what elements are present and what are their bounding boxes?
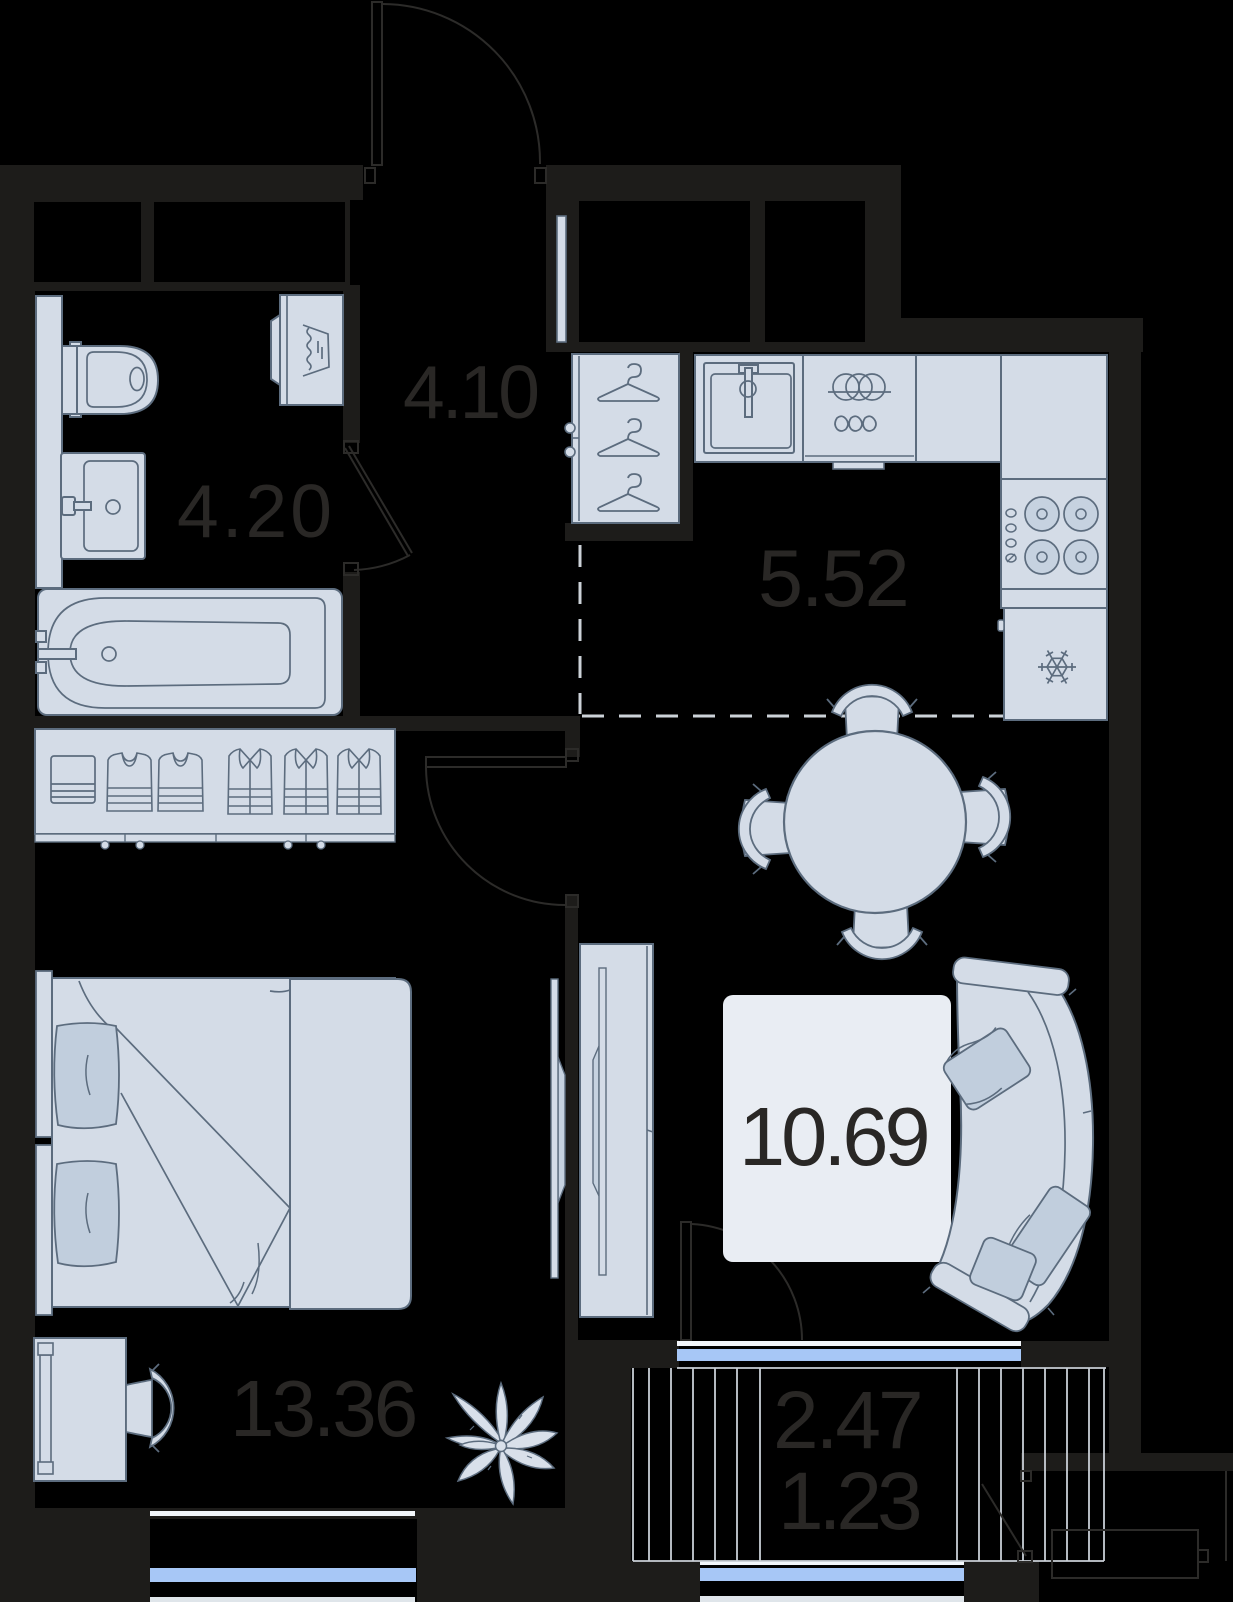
svg-text:13.36: 13.36 [230, 1364, 415, 1453]
svg-text:2.47: 2.47 [773, 1375, 921, 1466]
svg-text:5.52: 5.52 [758, 534, 908, 624]
svg-text:10.69: 10.69 [739, 1090, 928, 1183]
svg-text:1.23: 1.23 [778, 1456, 919, 1547]
svg-text:4.10: 4.10 [403, 350, 537, 434]
svg-text:4.20: 4.20 [177, 469, 335, 553]
